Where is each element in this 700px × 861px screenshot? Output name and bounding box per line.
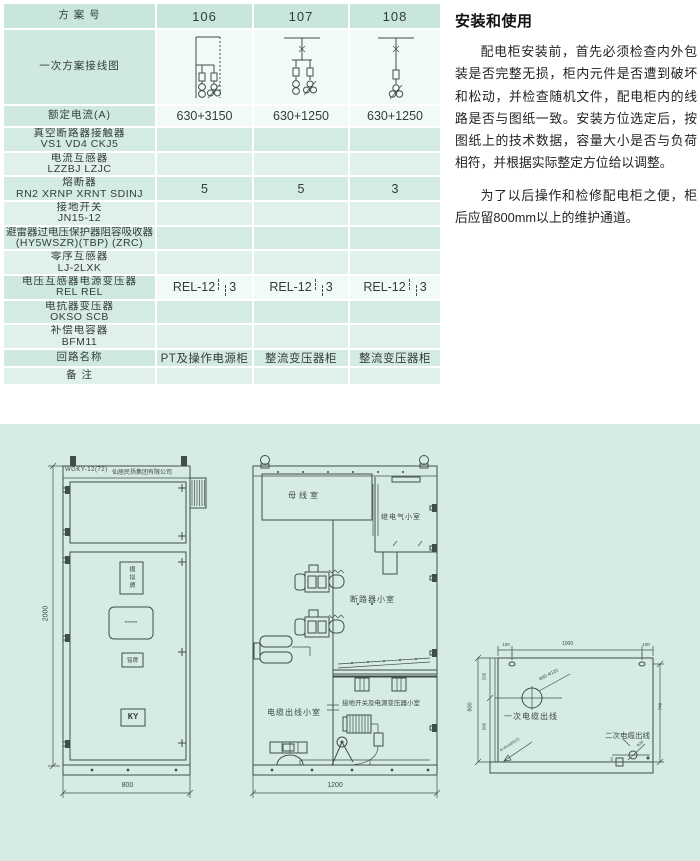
cell-value: 整流变压器柜 (253, 349, 349, 367)
cell-value: 630+1250 (253, 105, 349, 127)
technical-drawings-panel: WGKY-12(72) 仙居民扬集团有限公司 2000 模拟牌 ▪▪▪▪▪▪▪▪… (0, 424, 700, 861)
section-view (250, 456, 440, 799)
table-row: 电压互感器电源变压器REL REL REL-123 REL-123 REL-12… (3, 275, 441, 300)
table-row: 方 案 号 106 107 108 (3, 3, 441, 29)
cell-value: PT及操作电源柜 (156, 349, 253, 367)
cell-value: 5 (156, 176, 253, 201)
table-row: 额定电流(A) 630+3150 630+1250 630+1250 (3, 105, 441, 127)
relay-room-label: 继电气小室 (381, 512, 421, 522)
scheme-number-label: 方 案 号 (3, 3, 156, 29)
plan-view (475, 646, 664, 773)
article-paragraph: 为了以后操作和检修配电柜之便，柜后应留800mm以上的维护通道。 (455, 185, 697, 230)
company-name-label: 仙居民扬集团有限公司 (112, 467, 172, 476)
breaker-room-label: 断路器小室 (350, 594, 395, 605)
row-label: 真空断路器接触器VS1 VD4 CKJ5 (3, 127, 156, 152)
dim-1000: 1000 (562, 641, 573, 647)
rel-cell: REL-123 (253, 275, 349, 300)
dim-100-left: 100 (499, 642, 513, 647)
scheme-106: 106 (156, 3, 253, 29)
dim-1200: 1200 (310, 782, 360, 789)
table-row: 备 注 (3, 367, 441, 385)
dim-505: 505 (481, 723, 486, 731)
cable-room-label: 电缆出线小室 (267, 707, 321, 718)
cell-value: 3 (349, 176, 441, 201)
cell-value: 5 (253, 176, 349, 201)
table-row: 避雷器过电压保护器阻容吸收器(HY5WSZR)(TBP) (ZRC) (3, 226, 441, 251)
table-row: 真空断路器接触器VS1 VD4 CKJ5 (3, 127, 441, 152)
dim-295: 295 (481, 673, 486, 681)
row-label: 避雷器过电压保护器阻容吸收器(HY5WSZR)(TBP) (ZRC) (3, 226, 156, 251)
row-label: 零序互感器LJ-2LXK (3, 250, 156, 275)
cabinet-drawings (0, 424, 700, 861)
cabinet-model-label: WGKY-12(72) (65, 467, 108, 473)
row-label: 补偿电容器BFM11 (3, 324, 156, 349)
nameplate-label: 铭牌 (123, 656, 142, 664)
table-row: 电抗器变压器OKSO SCB (3, 300, 441, 325)
oneline-diagram-108 (352, 32, 438, 102)
primary-cable-label: 一次电缆出线 (504, 711, 558, 722)
table-row: 电流互感器LZZBJ LZJC (3, 152, 441, 177)
dim-800-plan: 800 (468, 702, 474, 711)
cell-value: 630+1250 (349, 105, 441, 127)
table-row: 回路名称 PT及操作电源柜 整流变压器柜 整流变压器柜 (3, 349, 441, 367)
table-row: 零序互感器LJ-2LXK (3, 250, 441, 275)
table-row: 一次方案接线图 (3, 29, 441, 105)
row-label: 额定电流(A) (3, 105, 156, 127)
dim-2000: 2000 (42, 606, 49, 622)
dim-800: 800 (100, 782, 155, 789)
rel-cell: REL-123 (349, 275, 441, 300)
front-view (48, 456, 206, 798)
article-title: 安装和使用 (455, 10, 697, 31)
row-label: 接地开关JN15-12 (3, 201, 156, 226)
table-row: 接地开关JN15-12 (3, 201, 441, 226)
row-label: 一次方案接线图 (3, 29, 156, 105)
rel-cell: REL-123 (156, 275, 253, 300)
mimic-board-label: 模拟牌 (127, 566, 136, 590)
scheme-107: 107 (253, 3, 349, 29)
scheme-108: 108 (349, 3, 441, 29)
article-paragraph: 配电柜安装前，首先必须检查内外包装是否完整无损，柜内元件是否遭到破坏和松动，并检… (455, 41, 697, 175)
cell-value: 整流变压器柜 (349, 349, 441, 367)
sec-offset-note: 60 (610, 757, 614, 761)
table-row: 熔断器RN2 XRNP XRNT SDINJ 5 5 3 (3, 176, 441, 201)
ky-logo: KY (121, 712, 145, 722)
row-label: 熔断器RN2 XRNP XRNT SDINJ (3, 176, 156, 201)
row-label: 备 注 (3, 367, 156, 385)
cell-value: 630+3150 (156, 105, 253, 127)
table-row: 补偿电容器BFM11 (3, 324, 441, 349)
micro-text-label: ▪▪▪▪▪▪▪▪▪ (112, 619, 150, 624)
install-and-use-article: 安装和使用 配电柜安装前，首先必须检查内外包装是否完整无损，柜内元件是否遭到破坏… (455, 6, 697, 239)
earth-room-label: 接地开关及电源变压器小室 (342, 697, 420, 707)
dim-100-right: 100 (639, 642, 653, 647)
row-label: 电流互感器LZZBJ LZJC (3, 152, 156, 177)
scheme-spec-table: 方 案 号 106 107 108 一次方案接线图 (2, 2, 442, 386)
row-label: 电压互感器电源变压器REL REL (3, 275, 156, 300)
secondary-cable-label: 二次电缆出线 (605, 730, 650, 741)
dim-740: 740 (657, 703, 662, 711)
oneline-diagram-107 (258, 32, 344, 102)
oneline-diagram-106 (162, 32, 248, 102)
row-label: 回路名称 (3, 349, 156, 367)
row-label: 电抗器变压器OKSO SCB (3, 300, 156, 325)
busbar-room-label: 母线室 (288, 490, 321, 501)
